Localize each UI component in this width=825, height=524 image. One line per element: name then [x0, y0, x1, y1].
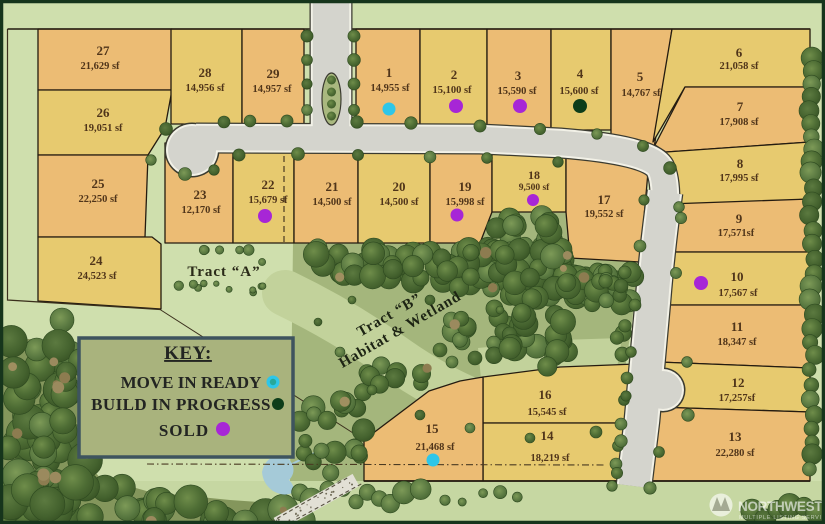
svg-text:SOLD: SOLD	[159, 421, 209, 440]
svg-text:21,468 sf: 21,468 sf	[415, 442, 455, 453]
svg-text:15: 15	[426, 421, 440, 436]
svg-text:17,908 sf: 17,908 sf	[719, 117, 759, 128]
svg-text:8: 8	[737, 156, 744, 171]
svg-text:14,500 sf: 14,500 sf	[312, 197, 352, 208]
svg-text:14,500 sf: 14,500 sf	[379, 197, 419, 208]
svg-text:25: 25	[92, 176, 106, 191]
svg-text:15,590 sf: 15,590 sf	[497, 86, 537, 97]
svg-text:15,545 sf: 15,545 sf	[527, 407, 567, 418]
svg-text:11: 11	[731, 319, 743, 334]
svg-text:24: 24	[90, 253, 104, 268]
svg-text:14,956 sf: 14,956 sf	[185, 83, 225, 94]
svg-text:2: 2	[451, 67, 458, 82]
svg-text:14,955 sf: 14,955 sf	[370, 83, 410, 94]
svg-text:6: 6	[736, 45, 743, 60]
svg-text:17: 17	[598, 192, 612, 207]
svg-text:28: 28	[199, 65, 213, 80]
svg-text:12,170 sf: 12,170 sf	[181, 205, 221, 216]
svg-text:5: 5	[637, 69, 644, 84]
svg-text:27: 27	[97, 43, 111, 58]
svg-text:20: 20	[393, 179, 406, 194]
svg-text:MOVE IN READY: MOVE IN READY	[121, 373, 262, 392]
svg-text:16: 16	[539, 387, 553, 402]
svg-text:NORTHWEST: NORTHWEST	[738, 499, 823, 514]
svg-text:9: 9	[736, 211, 743, 226]
svg-text:18,219 sf: 18,219 sf	[530, 453, 570, 464]
svg-text:KEY:: KEY:	[164, 343, 212, 364]
svg-text:14: 14	[541, 428, 555, 443]
svg-text:15,600 sf: 15,600 sf	[559, 86, 599, 97]
svg-text:17,257sf: 17,257sf	[719, 393, 756, 404]
svg-text:21: 21	[326, 179, 339, 194]
svg-text:MULTIPLE LISTING SERVICE: MULTIPLE LISTING SERVICE	[739, 515, 825, 521]
svg-text:17,995 sf: 17,995 sf	[719, 173, 759, 184]
svg-text:29: 29	[267, 66, 281, 81]
svg-text:14,957 sf: 14,957 sf	[252, 84, 292, 95]
svg-text:26: 26	[97, 105, 111, 120]
svg-text:18,347 sf: 18,347 sf	[717, 337, 757, 348]
svg-text:15,679 sf: 15,679 sf	[248, 195, 288, 206]
svg-text:23: 23	[194, 187, 208, 202]
svg-text:10: 10	[731, 269, 744, 284]
svg-text:22: 22	[262, 177, 275, 192]
svg-text:12: 12	[732, 375, 745, 390]
svg-text:BUILD IN PROGRESS: BUILD IN PROGRESS	[91, 395, 271, 414]
svg-text:17,567 sf: 17,567 sf	[718, 288, 758, 299]
svg-text:22,250 sf: 22,250 sf	[78, 194, 118, 205]
svg-text:15,998 sf: 15,998 sf	[445, 197, 485, 208]
svg-text:15,100 sf: 15,100 sf	[432, 85, 472, 96]
svg-text:21,058 sf: 21,058 sf	[719, 61, 759, 72]
svg-text:17,571sf: 17,571sf	[718, 228, 755, 239]
svg-text:14,767 sf: 14,767 sf	[621, 88, 661, 99]
svg-text:3: 3	[515, 68, 522, 83]
svg-text:19,552 sf: 19,552 sf	[584, 209, 624, 220]
svg-text:4: 4	[577, 66, 584, 81]
svg-text:13: 13	[729, 429, 743, 444]
svg-text:19: 19	[459, 179, 473, 194]
svg-text:24,523 sf: 24,523 sf	[77, 271, 117, 282]
svg-text:19,051 sf: 19,051 sf	[83, 123, 123, 134]
svg-text:22,280 sf: 22,280 sf	[715, 448, 755, 459]
svg-text:7: 7	[737, 99, 744, 114]
svg-text:1: 1	[386, 65, 393, 80]
svg-text:21,629 sf: 21,629 sf	[80, 61, 120, 72]
svg-text:9,500 sf: 9,500 sf	[519, 183, 550, 193]
svg-text:18: 18	[528, 168, 540, 182]
svg-text:Tract “A”: Tract “A”	[187, 264, 260, 280]
